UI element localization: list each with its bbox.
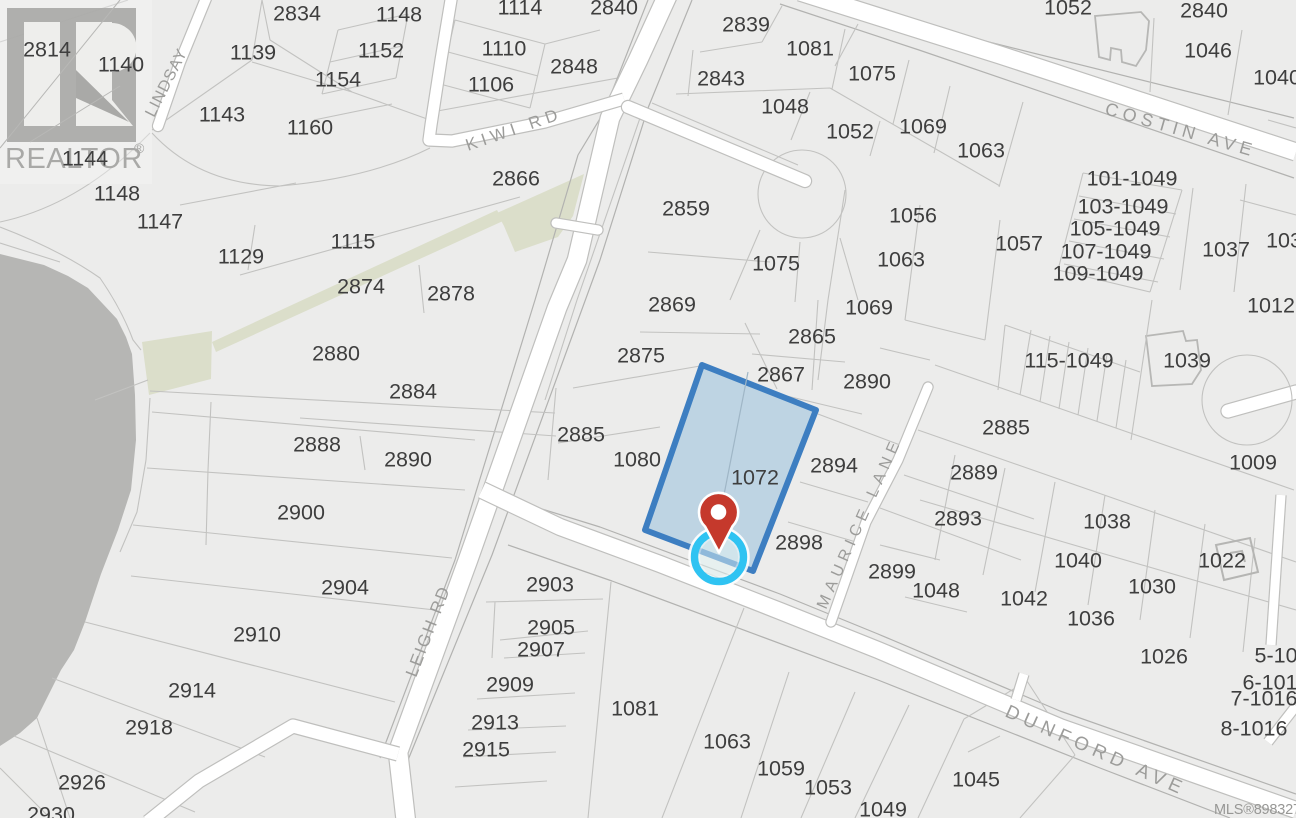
svg-text:2859: 2859 <box>662 197 710 221</box>
svg-text:1045: 1045 <box>952 768 1000 792</box>
svg-text:2890: 2890 <box>384 448 432 472</box>
svg-text:1080: 1080 <box>613 448 661 472</box>
svg-text:1039: 1039 <box>1163 349 1211 373</box>
svg-text:2843: 2843 <box>697 67 745 91</box>
svg-text:2839: 2839 <box>722 13 770 37</box>
svg-text:2900: 2900 <box>277 501 325 525</box>
svg-text:1037: 1037 <box>1202 238 1250 262</box>
svg-text:1106: 1106 <box>468 73 514 97</box>
svg-text:1075: 1075 <box>848 62 896 86</box>
svg-text:1052: 1052 <box>1044 0 1092 20</box>
svg-text:1140: 1140 <box>98 53 144 77</box>
svg-text:2899: 2899 <box>868 560 916 584</box>
svg-text:1009: 1009 <box>1229 451 1277 475</box>
svg-text:1048: 1048 <box>761 95 809 119</box>
svg-text:2878: 2878 <box>427 282 475 306</box>
svg-text:2918: 2918 <box>125 716 173 740</box>
svg-text:1081: 1081 <box>611 697 659 721</box>
svg-text:1152: 1152 <box>358 39 404 63</box>
svg-text:2894: 2894 <box>810 454 858 478</box>
svg-text:2905: 2905 <box>527 616 575 640</box>
svg-text:®: ® <box>134 140 145 156</box>
svg-text:5-1016: 5-1016 <box>1255 644 1296 668</box>
svg-text:2893: 2893 <box>934 507 982 531</box>
svg-text:107-1049: 107-1049 <box>1061 240 1152 264</box>
svg-text:2840: 2840 <box>1180 0 1228 23</box>
svg-text:7-1016: 7-1016 <box>1231 687 1296 711</box>
svg-text:1154: 1154 <box>315 68 361 92</box>
svg-text:2814: 2814 <box>23 38 71 62</box>
svg-text:2898: 2898 <box>775 531 823 555</box>
svg-text:1072: 1072 <box>731 466 779 490</box>
svg-text:2888: 2888 <box>293 433 341 457</box>
svg-text:1048: 1048 <box>912 579 960 603</box>
svg-text:2904: 2904 <box>321 576 369 600</box>
svg-text:2875: 2875 <box>617 344 665 368</box>
svg-text:1114: 1114 <box>498 0 543 20</box>
svg-text:1110: 1110 <box>482 37 527 61</box>
svg-text:1160: 1160 <box>287 116 333 140</box>
svg-text:2884: 2884 <box>389 380 437 404</box>
svg-text:2930: 2930 <box>27 803 75 818</box>
svg-text:1081: 1081 <box>786 37 834 61</box>
svg-text:1144: 1144 <box>62 147 108 171</box>
svg-text:1042: 1042 <box>1000 587 1048 611</box>
svg-text:109-1049: 109-1049 <box>1053 262 1144 286</box>
svg-text:1069: 1069 <box>899 115 947 139</box>
svg-text:1057: 1057 <box>995 232 1043 256</box>
svg-text:101-1049: 101-1049 <box>1087 167 1178 191</box>
svg-text:1049: 1049 <box>859 798 907 818</box>
svg-text:1040: 1040 <box>1054 549 1102 573</box>
svg-text:1063: 1063 <box>703 730 751 754</box>
svg-text:2907: 2907 <box>517 638 565 662</box>
svg-text:2885: 2885 <box>557 423 605 447</box>
svg-text:1056: 1056 <box>889 204 937 228</box>
svg-text:1148: 1148 <box>376 3 422 27</box>
svg-text:1038: 1038 <box>1083 510 1131 534</box>
svg-text:2867: 2867 <box>757 363 805 387</box>
svg-text:1063: 1063 <box>957 139 1005 163</box>
svg-text:1148: 1148 <box>94 182 140 206</box>
svg-text:1129: 1129 <box>218 245 264 269</box>
svg-text:2840: 2840 <box>590 0 638 20</box>
svg-text:2915: 2915 <box>462 738 510 762</box>
svg-text:2903: 2903 <box>526 573 574 597</box>
svg-text:1012: 1012 <box>1247 294 1295 318</box>
svg-text:1053: 1053 <box>804 776 852 800</box>
svg-text:2914: 2914 <box>168 679 216 703</box>
svg-text:1143: 1143 <box>199 103 245 127</box>
svg-text:1139: 1139 <box>230 41 276 65</box>
svg-text:2869: 2869 <box>648 293 696 317</box>
svg-text:1040: 1040 <box>1253 66 1296 90</box>
svg-text:1059: 1059 <box>757 757 805 781</box>
svg-text:2885: 2885 <box>982 416 1030 440</box>
svg-text:1052: 1052 <box>826 120 874 144</box>
svg-text:1115: 1115 <box>331 230 376 254</box>
svg-text:2910: 2910 <box>233 623 281 647</box>
svg-text:MLS®898327: MLS®898327 <box>1214 802 1296 818</box>
svg-text:1046: 1046 <box>1184 39 1232 63</box>
svg-text:1063: 1063 <box>877 248 925 272</box>
svg-text:2834: 2834 <box>273 2 321 26</box>
svg-text:1069: 1069 <box>845 296 893 320</box>
svg-text:2865: 2865 <box>788 325 836 349</box>
svg-text:2874: 2874 <box>337 275 385 299</box>
svg-text:2890: 2890 <box>843 370 891 394</box>
svg-text:1035: 1035 <box>1266 229 1296 253</box>
svg-text:2848: 2848 <box>550 55 598 79</box>
svg-text:115-1049: 115-1049 <box>1024 349 1113 373</box>
svg-text:1022: 1022 <box>1198 549 1246 573</box>
svg-text:1075: 1075 <box>752 252 800 276</box>
svg-text:8-1016: 8-1016 <box>1221 717 1288 741</box>
svg-text:2866: 2866 <box>492 167 540 191</box>
svg-text:103-1049: 103-1049 <box>1078 195 1169 219</box>
svg-text:1036: 1036 <box>1067 607 1115 631</box>
svg-text:1030: 1030 <box>1128 575 1176 599</box>
svg-text:2926: 2926 <box>58 771 106 795</box>
svg-text:105-1049: 105-1049 <box>1070 217 1161 241</box>
svg-text:2913: 2913 <box>471 711 519 735</box>
svg-text:2880: 2880 <box>312 342 360 366</box>
svg-text:1147: 1147 <box>137 210 183 234</box>
svg-text:2909: 2909 <box>486 673 534 697</box>
svg-text:1026: 1026 <box>1140 645 1188 669</box>
svg-text:2889: 2889 <box>950 461 998 485</box>
